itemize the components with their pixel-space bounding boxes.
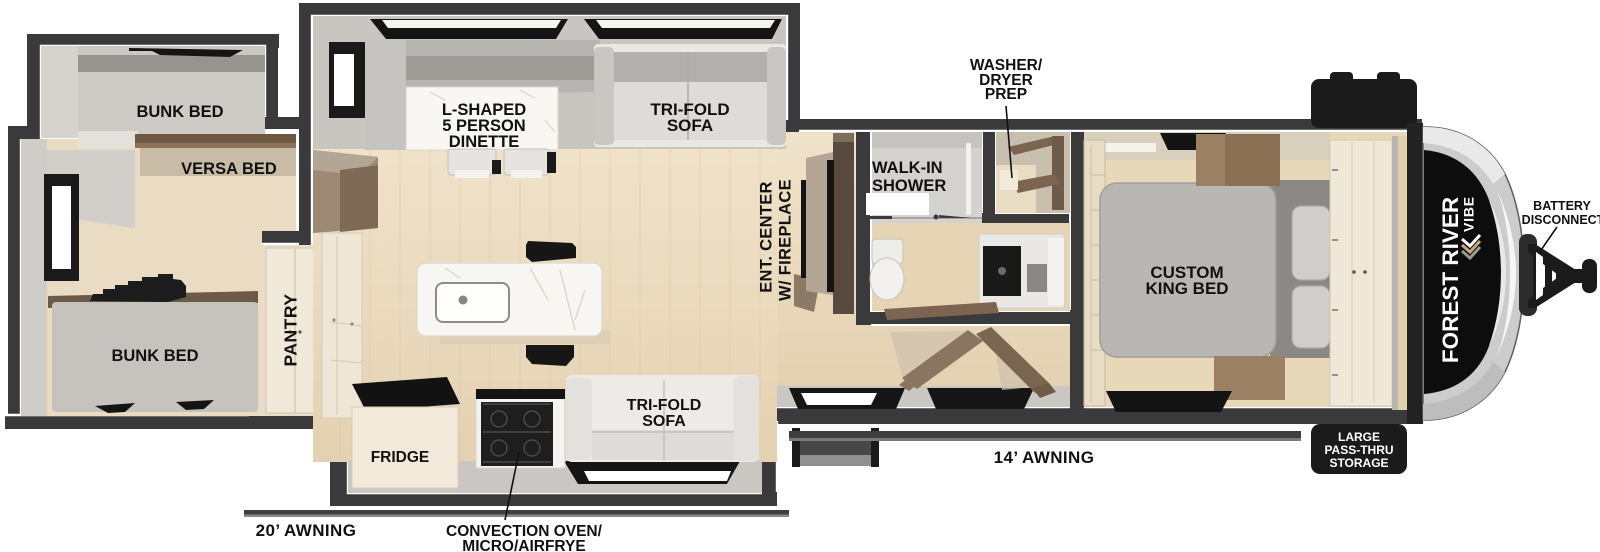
svg-text:LARGE: LARGE	[1338, 430, 1380, 444]
svg-text:WALK-IN: WALK-IN	[872, 159, 943, 177]
svg-text:DISCONNECT: DISCONNECT	[1522, 213, 1600, 227]
svg-text:SOFA: SOFA	[642, 413, 686, 430]
svg-text:TRI-FOLD: TRI-FOLD	[627, 397, 702, 414]
svg-text:SHOWER: SHOWER	[872, 177, 946, 195]
svg-text:14’ AWNING: 14’ AWNING	[994, 448, 1095, 467]
svg-text:PASS-THRU: PASS-THRU	[1324, 443, 1393, 457]
svg-text:BUNK BED: BUNK BED	[111, 347, 198, 365]
svg-text:MICRO/AIRFRYE: MICRO/AIRFRYE	[462, 538, 585, 552]
svg-text:DINETTE: DINETTE	[449, 133, 520, 151]
svg-text:FRIDGE: FRIDGE	[371, 449, 430, 466]
svg-text:BUNK BED: BUNK BED	[136, 103, 223, 121]
svg-text:W/ FIREPLACE: W/ FIREPLACE	[776, 179, 794, 301]
svg-text:VIBE: VIBE	[1461, 196, 1477, 232]
svg-text:FOREST RIVER: FOREST RIVER	[1438, 197, 1463, 363]
svg-text:VERSA BED: VERSA BED	[181, 160, 277, 178]
svg-text:PANTRY: PANTRY	[281, 294, 301, 367]
svg-text:SOFA: SOFA	[667, 116, 713, 135]
svg-text:20’ AWNING: 20’ AWNING	[256, 521, 357, 540]
svg-text:KING BED: KING BED	[1145, 279, 1228, 298]
svg-text:STORAGE: STORAGE	[1329, 456, 1388, 470]
svg-text:ENT. CENTER: ENT. CENTER	[757, 181, 775, 292]
svg-text:PREP: PREP	[985, 86, 1027, 103]
svg-text:BATTERY: BATTERY	[1533, 199, 1591, 213]
